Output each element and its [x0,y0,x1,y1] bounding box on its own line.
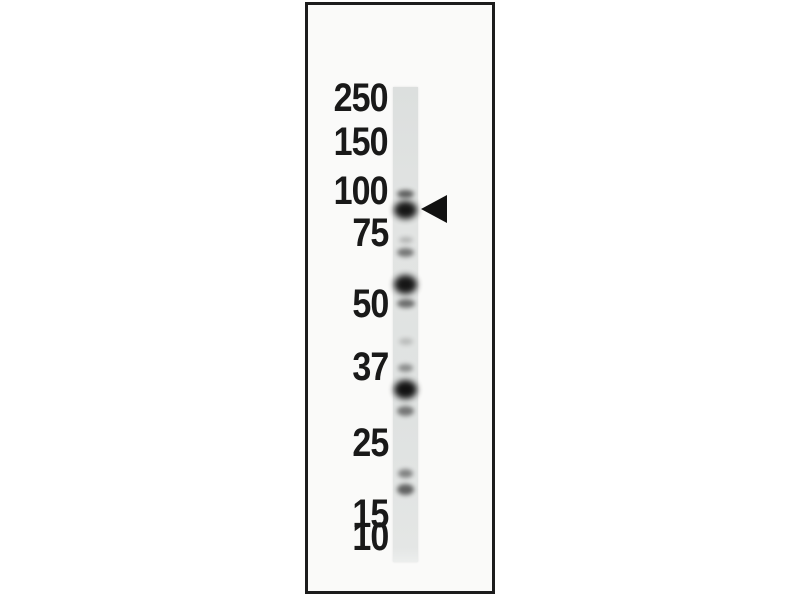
marker-label-50: 50 [352,283,388,325]
marker-label-250: 250 [334,77,388,119]
protein-band [397,484,414,495]
protein-band [399,237,413,243]
western-blot-figure: 250150100755037251510 [0,0,800,600]
band-pointer-arrowhead [421,195,447,223]
protein-band [397,406,414,416]
protein-band [394,275,417,294]
protein-band [394,201,417,219]
marker-label-10: 10 [352,516,388,558]
protein-band [398,364,413,372]
marker-label-25: 25 [352,422,388,464]
marker-label-37: 37 [352,346,388,388]
marker-label-75: 75 [352,212,388,254]
protein-band [398,469,413,478]
protein-band [397,190,414,198]
marker-label-150: 150 [334,121,388,163]
protein-band [397,248,414,257]
marker-label-100: 100 [334,170,388,212]
blot-lane [393,87,418,562]
protein-band [394,380,417,399]
protein-band [397,299,415,308]
protein-band [399,338,413,345]
